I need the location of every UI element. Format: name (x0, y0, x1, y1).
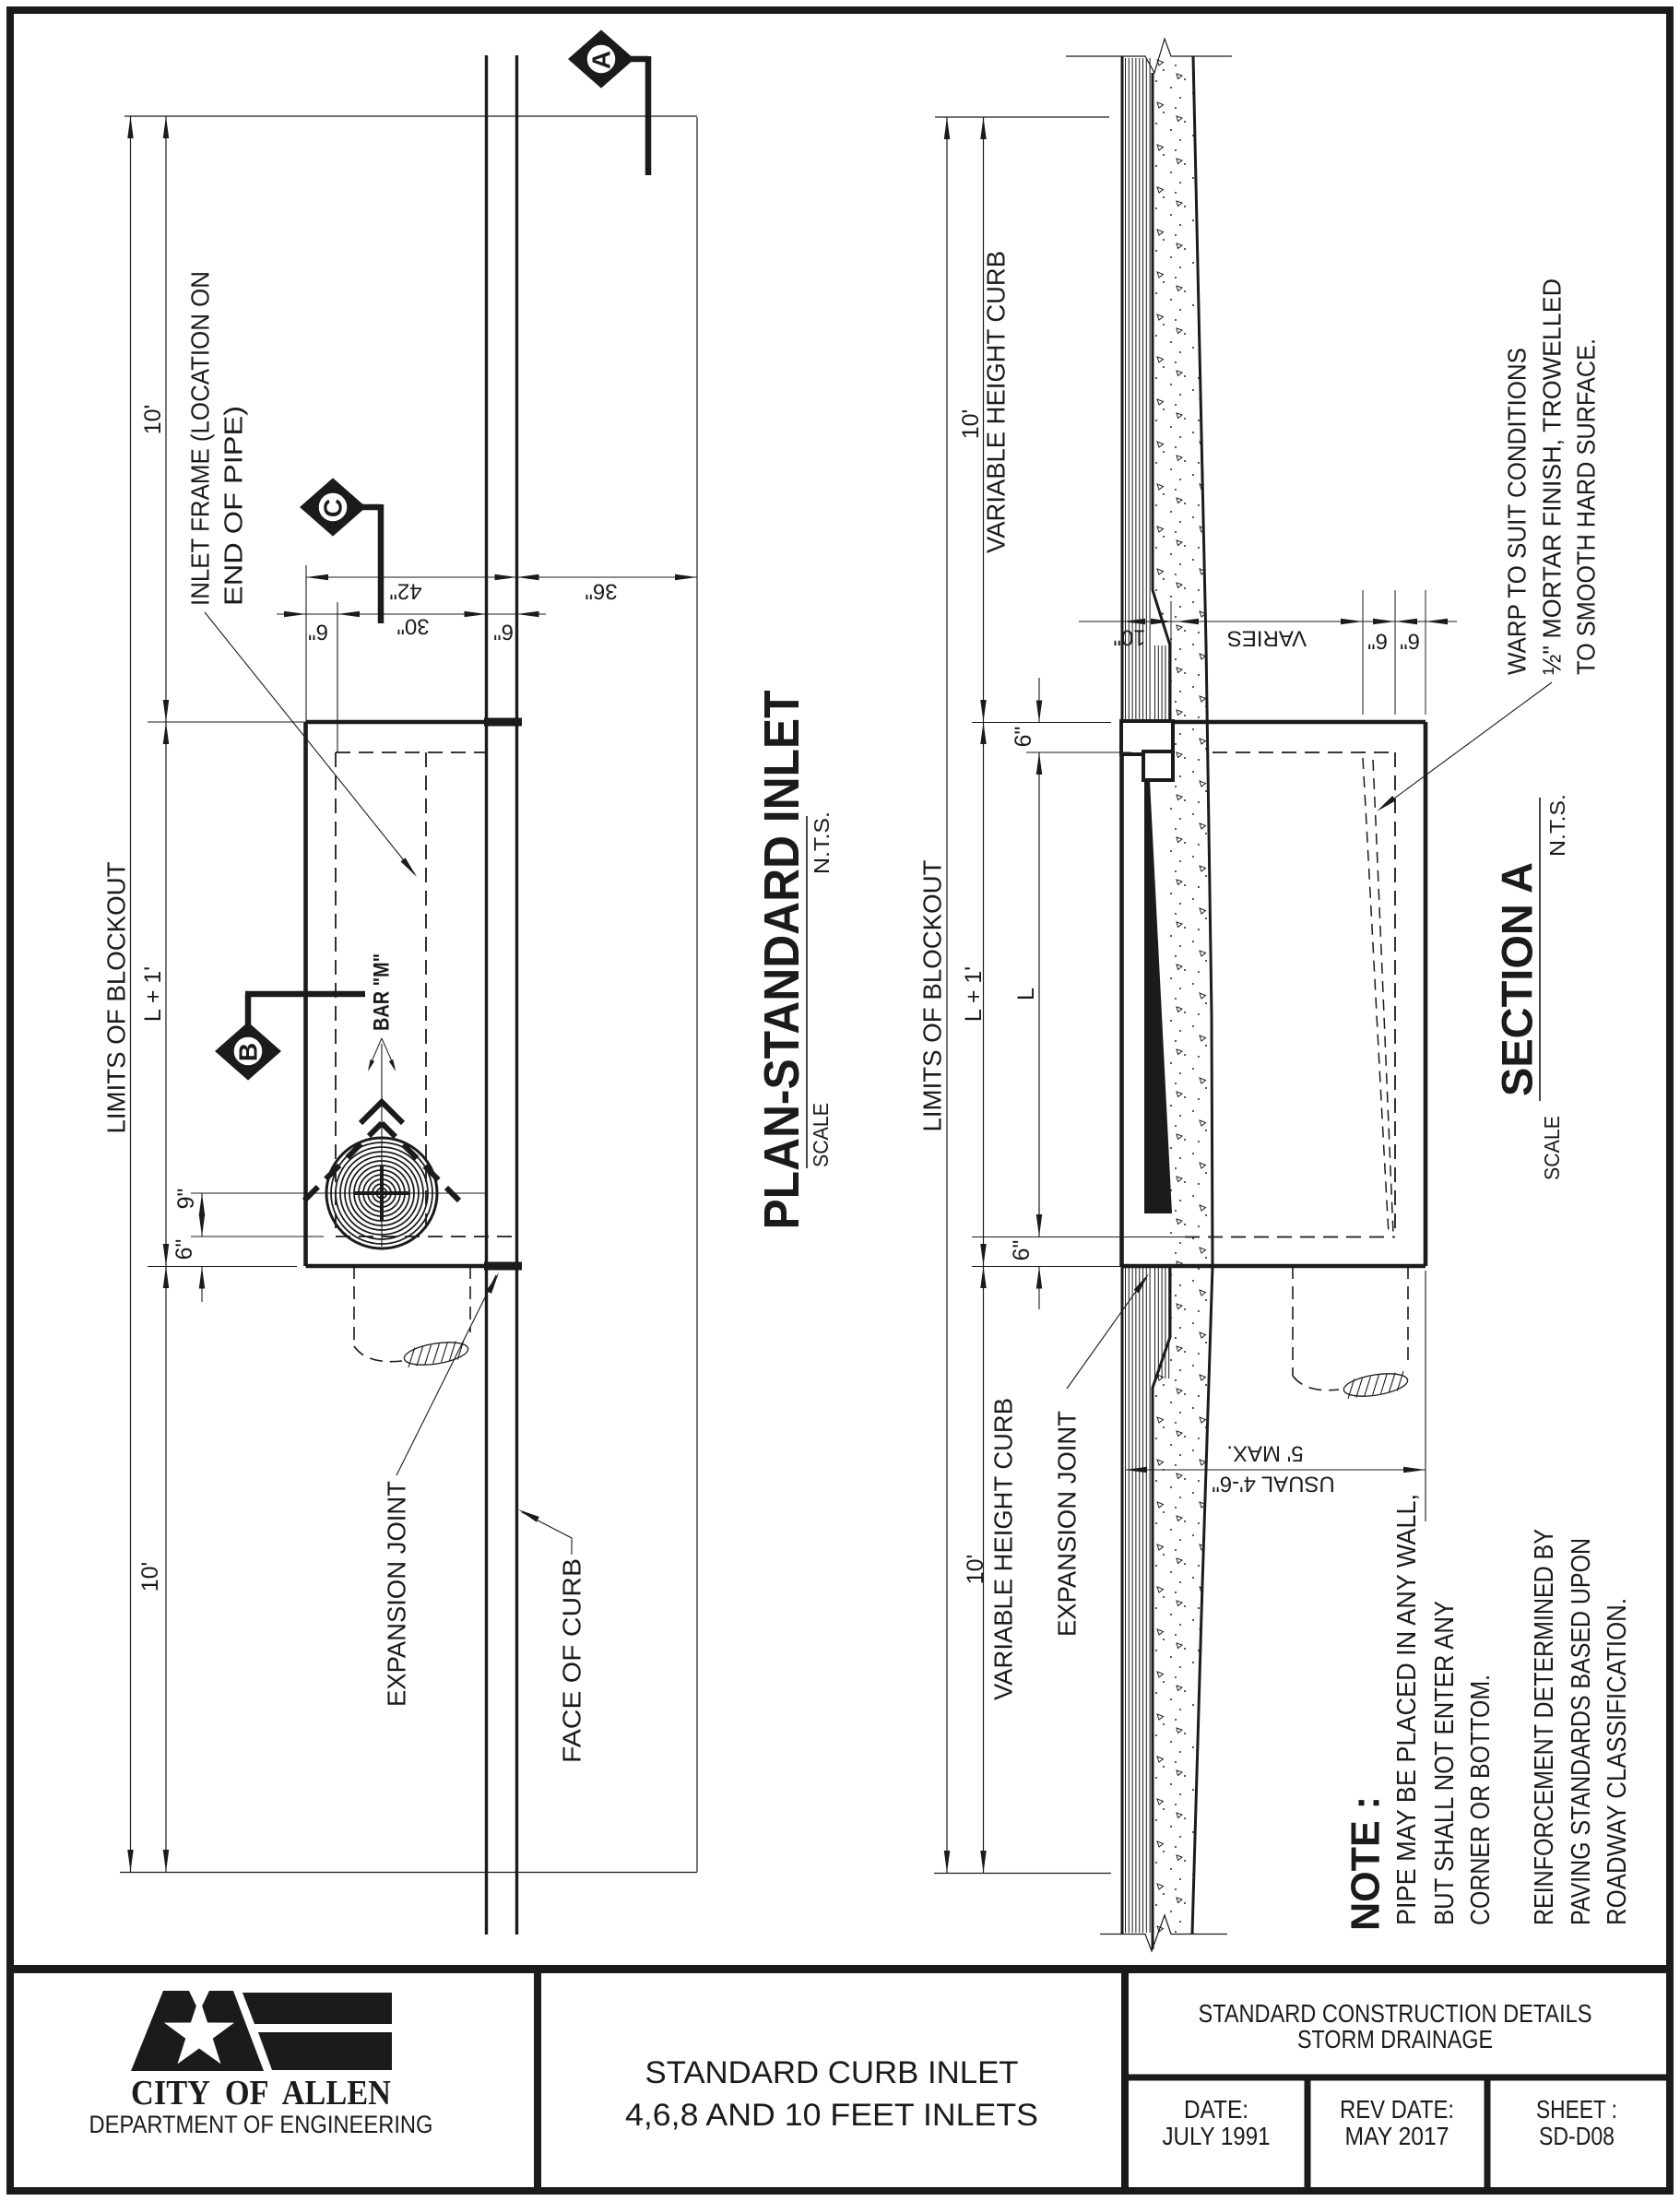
svg-text:VARIABLE HEIGHT CURB: VARIABLE HEIGHT CURB (989, 1398, 1018, 1700)
svg-text:JULY 1991: JULY 1991 (1163, 2122, 1271, 2150)
svg-text:INLET FRAME (LOCATION ON: INLET FRAME (LOCATION ON (186, 271, 215, 606)
svg-text:TO SMOOTH HARD SURFACE.: TO SMOOTH HARD SURFACE. (1572, 338, 1601, 675)
svg-text:USUAL 4'-6": USUAL 4'-6" (1212, 1472, 1335, 1497)
svg-text:STANDARD CURB INLET: STANDARD CURB INLET (645, 2055, 1019, 2090)
svg-text:STORM DRAINAGE: STORM DRAINAGE (1297, 2025, 1493, 2053)
svg-text:10': 10' (137, 1562, 163, 1592)
svg-text:C: C (319, 499, 348, 517)
svg-text:MAY 2017: MAY 2017 (1345, 2122, 1449, 2150)
svg-text:6": 6" (1011, 727, 1036, 748)
svg-text:SHEET :: SHEET : (1536, 2095, 1617, 2124)
svg-text:EXPANSION JOINT: EXPANSION JOINT (383, 1481, 411, 1707)
svg-text:NOTE :: NOTE : (1343, 1796, 1389, 1931)
svg-text:SCALE: SCALE (1540, 1116, 1564, 1180)
svg-text:N.T.S.: N.T.S. (1545, 794, 1569, 857)
svg-text:36": 36" (585, 579, 617, 604)
svg-text:REINFORCEMENT DETERMINED BY: REINFORCEMENT DETERMINED BY (1530, 1529, 1559, 1925)
svg-text:FACE OF CURB: FACE OF CURB (558, 1558, 586, 1763)
svg-text:L + 1': L + 1' (961, 966, 987, 1022)
svg-text:6": 6" (308, 620, 328, 645)
svg-text:CITY OF ALLEN: CITY OF ALLEN (131, 2074, 391, 2112)
svg-text:L: L (1013, 988, 1039, 1000)
svg-text:STANDARD CONSTRUCTION DETAILS: STANDARD CONSTRUCTION DETAILS (1199, 1999, 1592, 2028)
svg-text:DEPARTMENT OF ENGINEERING: DEPARTMENT OF ENGINEERING (89, 2111, 433, 2138)
svg-text:10": 10" (1113, 625, 1145, 650)
svg-text:VARIES: VARIES (1227, 626, 1307, 651)
svg-text:VARIABLE HEIGHT CURB: VARIABLE HEIGHT CURB (982, 251, 1011, 553)
svg-text:PLAN-STANDARD INLET: PLAN-STANDARD INLET (754, 690, 810, 1229)
svg-text:LIMITS OF BLOCKOUT: LIMITS OF BLOCKOUT (102, 862, 131, 1134)
svg-text:10': 10' (140, 405, 166, 435)
svg-text:PIPE MAY BE PLACED IN ANY WALL: PIPE MAY BE PLACED IN ANY WALL, (1392, 1494, 1422, 1925)
svg-text:WARP TO SUIT CONDITIONS: WARP TO SUIT CONDITIONS (1503, 348, 1532, 675)
svg-text:B: B (234, 1043, 263, 1061)
svg-text:9": 9" (173, 1189, 199, 1210)
svg-text:N.T.S.: N.T.S. (810, 811, 834, 874)
svg-text:SECTION A: SECTION A (1493, 862, 1542, 1096)
svg-text:6": 6" (172, 1239, 197, 1260)
svg-text:42": 42" (389, 579, 421, 604)
svg-text:SD-D08: SD-D08 (1539, 2122, 1615, 2150)
svg-text:A: A (587, 51, 616, 69)
svg-text:30": 30" (396, 614, 429, 639)
svg-text:½" MORTAR FINISH, TROWELLED: ½" MORTAR FINISH, TROWELLED (1538, 278, 1567, 675)
svg-text:BAR "M": BAR "M" (370, 953, 395, 1031)
svg-text:6": 6" (1400, 629, 1420, 654)
svg-text:10': 10' (958, 409, 984, 440)
svg-text:LIMITS OF BLOCKOUT: LIMITS OF BLOCKOUT (918, 860, 947, 1132)
svg-text:CORNER OR BOTTOM.: CORNER OR BOTTOM. (1466, 1674, 1496, 1925)
svg-text:6": 6" (1009, 1240, 1035, 1261)
svg-text:L + 1': L + 1' (140, 966, 166, 1022)
svg-text:END OF PIPE): END OF PIPE) (219, 406, 248, 606)
svg-text:10': 10' (963, 1555, 988, 1585)
svg-text:PAVING STANDARDS BASED UPON: PAVING STANDARDS BASED UPON (1567, 1538, 1596, 1925)
svg-text:ROADWAY CLASSIFICATION.: ROADWAY CLASSIFICATION. (1603, 1598, 1632, 1925)
svg-text:DATE:: DATE: (1184, 2095, 1248, 2124)
svg-text:4,6,8 AND 10 FEET INLETS: 4,6,8 AND 10 FEET INLETS (625, 2098, 1038, 2133)
svg-text:BUT SHALL NOT ENTER ANY: BUT SHALL NOT ENTER ANY (1430, 1601, 1460, 1925)
svg-text:REV DATE:: REV DATE: (1340, 2095, 1454, 2124)
svg-text:5' MAX.: 5' MAX. (1226, 1441, 1303, 1466)
svg-text:6": 6" (493, 620, 514, 645)
svg-text:SCALE: SCALE (809, 1103, 833, 1167)
svg-text:6": 6" (1367, 629, 1388, 654)
svg-text:EXPANSION JOINT: EXPANSION JOINT (1053, 1411, 1082, 1637)
